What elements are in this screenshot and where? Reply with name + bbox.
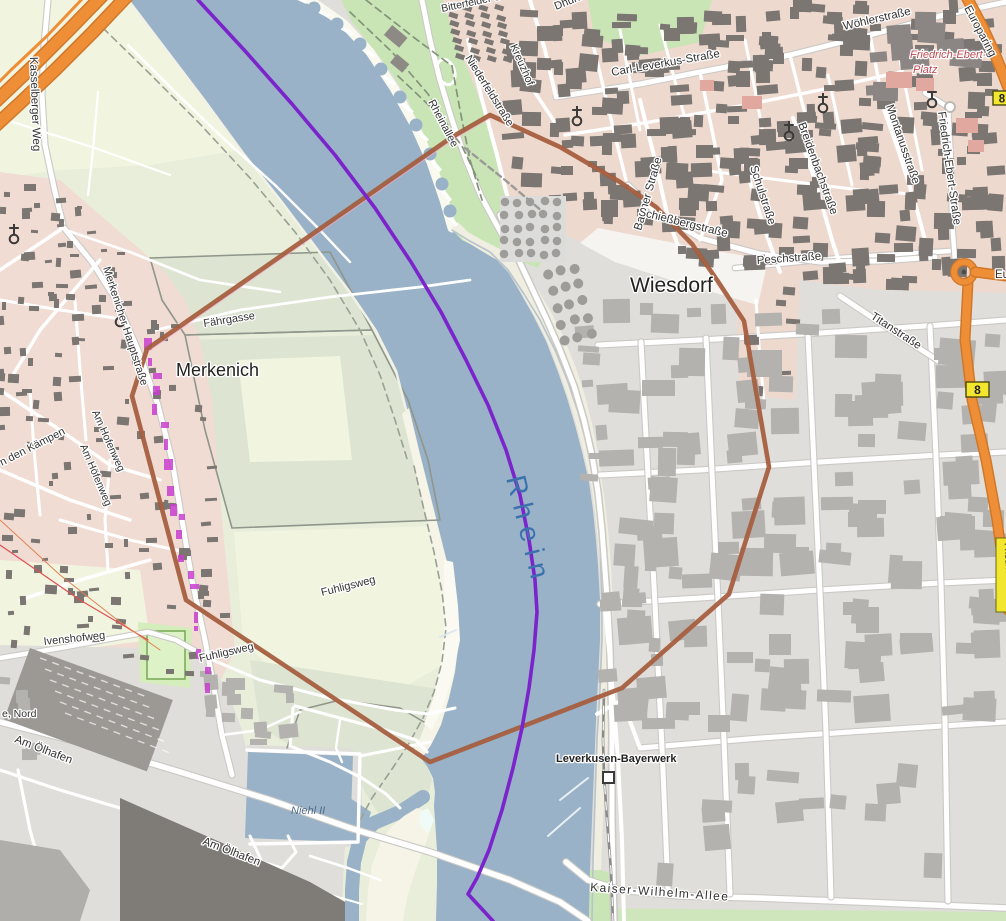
svg-text:Eu: Eu	[995, 269, 1006, 281]
svg-text:Niehl II: Niehl II	[291, 805, 325, 817]
svg-text:Leverkusen-Bayerwerk: Leverkusen-Bayerwerk	[556, 753, 677, 765]
svg-text:e, Nord: e, Nord	[2, 708, 37, 720]
svg-text:8: 8	[999, 94, 1006, 106]
svg-text:Wiesdorf: Wiesdorf	[630, 274, 713, 297]
svg-text:Platz: Platz	[913, 64, 938, 76]
svg-text:8: 8	[974, 383, 981, 397]
svg-text:Merkenich: Merkenich	[176, 360, 259, 380]
svg-text:Friedrich-Ebert-: Friedrich-Ebert-	[910, 49, 987, 61]
